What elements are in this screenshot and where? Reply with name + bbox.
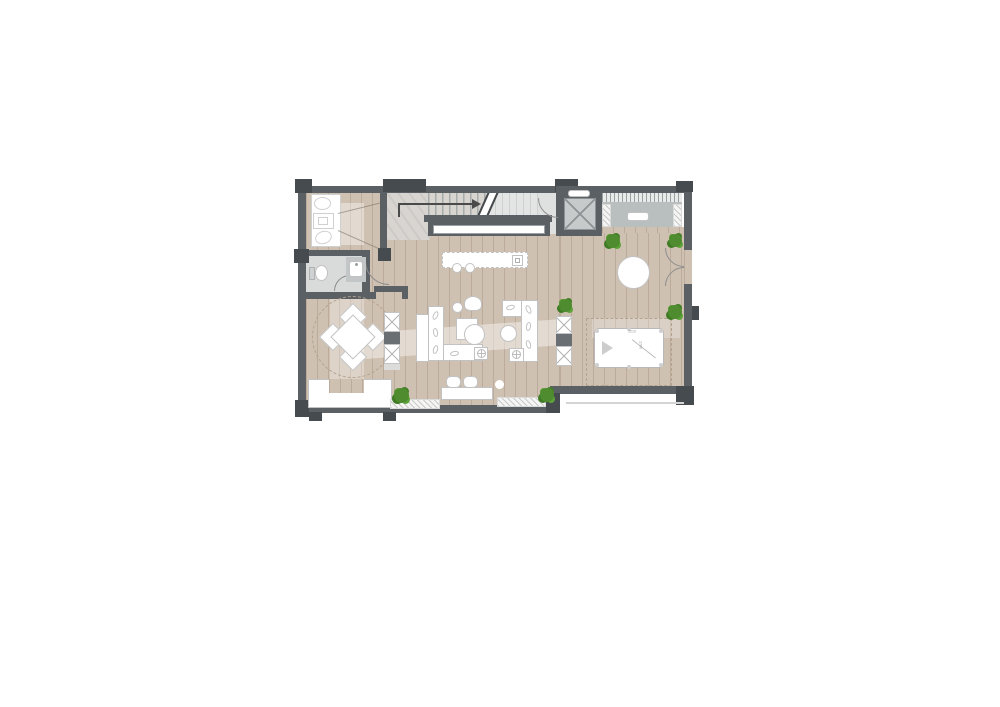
- pier-bottom-stub-1: [309, 412, 322, 421]
- lamp-right: [512, 350, 521, 359]
- shelf-column-left-lower: [384, 344, 400, 364]
- bench-cushion-1: [446, 376, 461, 388]
- pool-pocket: [659, 329, 663, 333]
- shelf-column-right-core: [556, 334, 572, 346]
- shelf-column-right-lower: [556, 346, 572, 366]
- wall-stair-bottom: [424, 215, 552, 222]
- shelf-column-left-core: [384, 332, 400, 344]
- plant: [559, 299, 572, 312]
- plant: [606, 234, 620, 248]
- pier-bottom-stub-2: [383, 412, 396, 421]
- pool-dimension-length: 3210: [624, 330, 641, 334]
- pool-pocket: [627, 365, 631, 369]
- study-laptop: [318, 217, 328, 225]
- elevator-car: [564, 198, 596, 230]
- shelf-column-left-base: [384, 364, 400, 370]
- pool-pocket: [595, 363, 599, 367]
- pool-dimension-width: 1700: [638, 337, 642, 354]
- pier-top-left: [295, 179, 312, 193]
- pier-top-mid: [383, 179, 426, 192]
- wall-bath-top: [300, 250, 368, 256]
- kitchen-counter: [433, 225, 545, 234]
- pier-right-step: [692, 306, 699, 320]
- pool-rack-triangle: [602, 341, 613, 355]
- wall-hall-stub: [402, 286, 408, 299]
- wardrobe-cabinet-insert: [627, 212, 649, 221]
- armchair-side-table: [452, 302, 463, 313]
- coffee-table-round-left: [464, 324, 485, 345]
- wall-left: [298, 186, 306, 412]
- floor-dressing-strip: [602, 227, 684, 233]
- bench-center: [441, 387, 493, 400]
- wall-right-upper: [684, 186, 692, 250]
- shelf-column-left-upper: [384, 312, 400, 332]
- plant: [394, 388, 409, 403]
- window-sill-2: [497, 397, 546, 407]
- plant: [668, 305, 682, 319]
- floor-dot: [495, 380, 504, 389]
- island-cooktop-knob: [515, 258, 520, 263]
- floor-door-threshold: [684, 248, 692, 286]
- wall-bottom-right: [558, 386, 684, 394]
- bath-tap: [355, 263, 358, 266]
- armchair: [464, 296, 482, 311]
- plant: [540, 388, 554, 402]
- toilet-bowl: [315, 265, 328, 281]
- wall-top: [298, 186, 692, 193]
- terrace-edge-line: [566, 402, 684, 404]
- lamp-left: [477, 349, 486, 358]
- wardrobe-side-left: [602, 204, 611, 227]
- floor-plan-canvas: 3210 1700: [0, 0, 1000, 707]
- pool-pocket: [595, 329, 599, 333]
- bench-cushion-2: [463, 376, 478, 388]
- wall-study-partition: [380, 186, 387, 252]
- island-sink-2: [465, 263, 475, 273]
- wall-right-lower: [684, 284, 692, 394]
- plant: [669, 234, 682, 247]
- pier-left-mid: [294, 249, 309, 263]
- round-table: [617, 256, 650, 289]
- stair-arrow-head: [472, 199, 481, 209]
- pier-bottom-left: [295, 400, 309, 417]
- pier-top-right: [676, 181, 693, 192]
- stair-arrow-hook: [398, 203, 400, 217]
- wardrobe-hatch: [602, 193, 682, 202]
- pool-pocket: [659, 363, 663, 367]
- elevator-door-sill: [568, 190, 590, 197]
- island-sink-1: [452, 263, 462, 273]
- coffee-table-round-right: [500, 325, 517, 342]
- study-chair-top: [314, 197, 331, 210]
- wardrobe-side-right: [673, 204, 682, 227]
- shelf-column-right-upper: [556, 316, 572, 334]
- window-seat-left-notch: [329, 379, 364, 393]
- stair-arrow-line: [398, 203, 474, 205]
- pier-study-door: [378, 248, 391, 261]
